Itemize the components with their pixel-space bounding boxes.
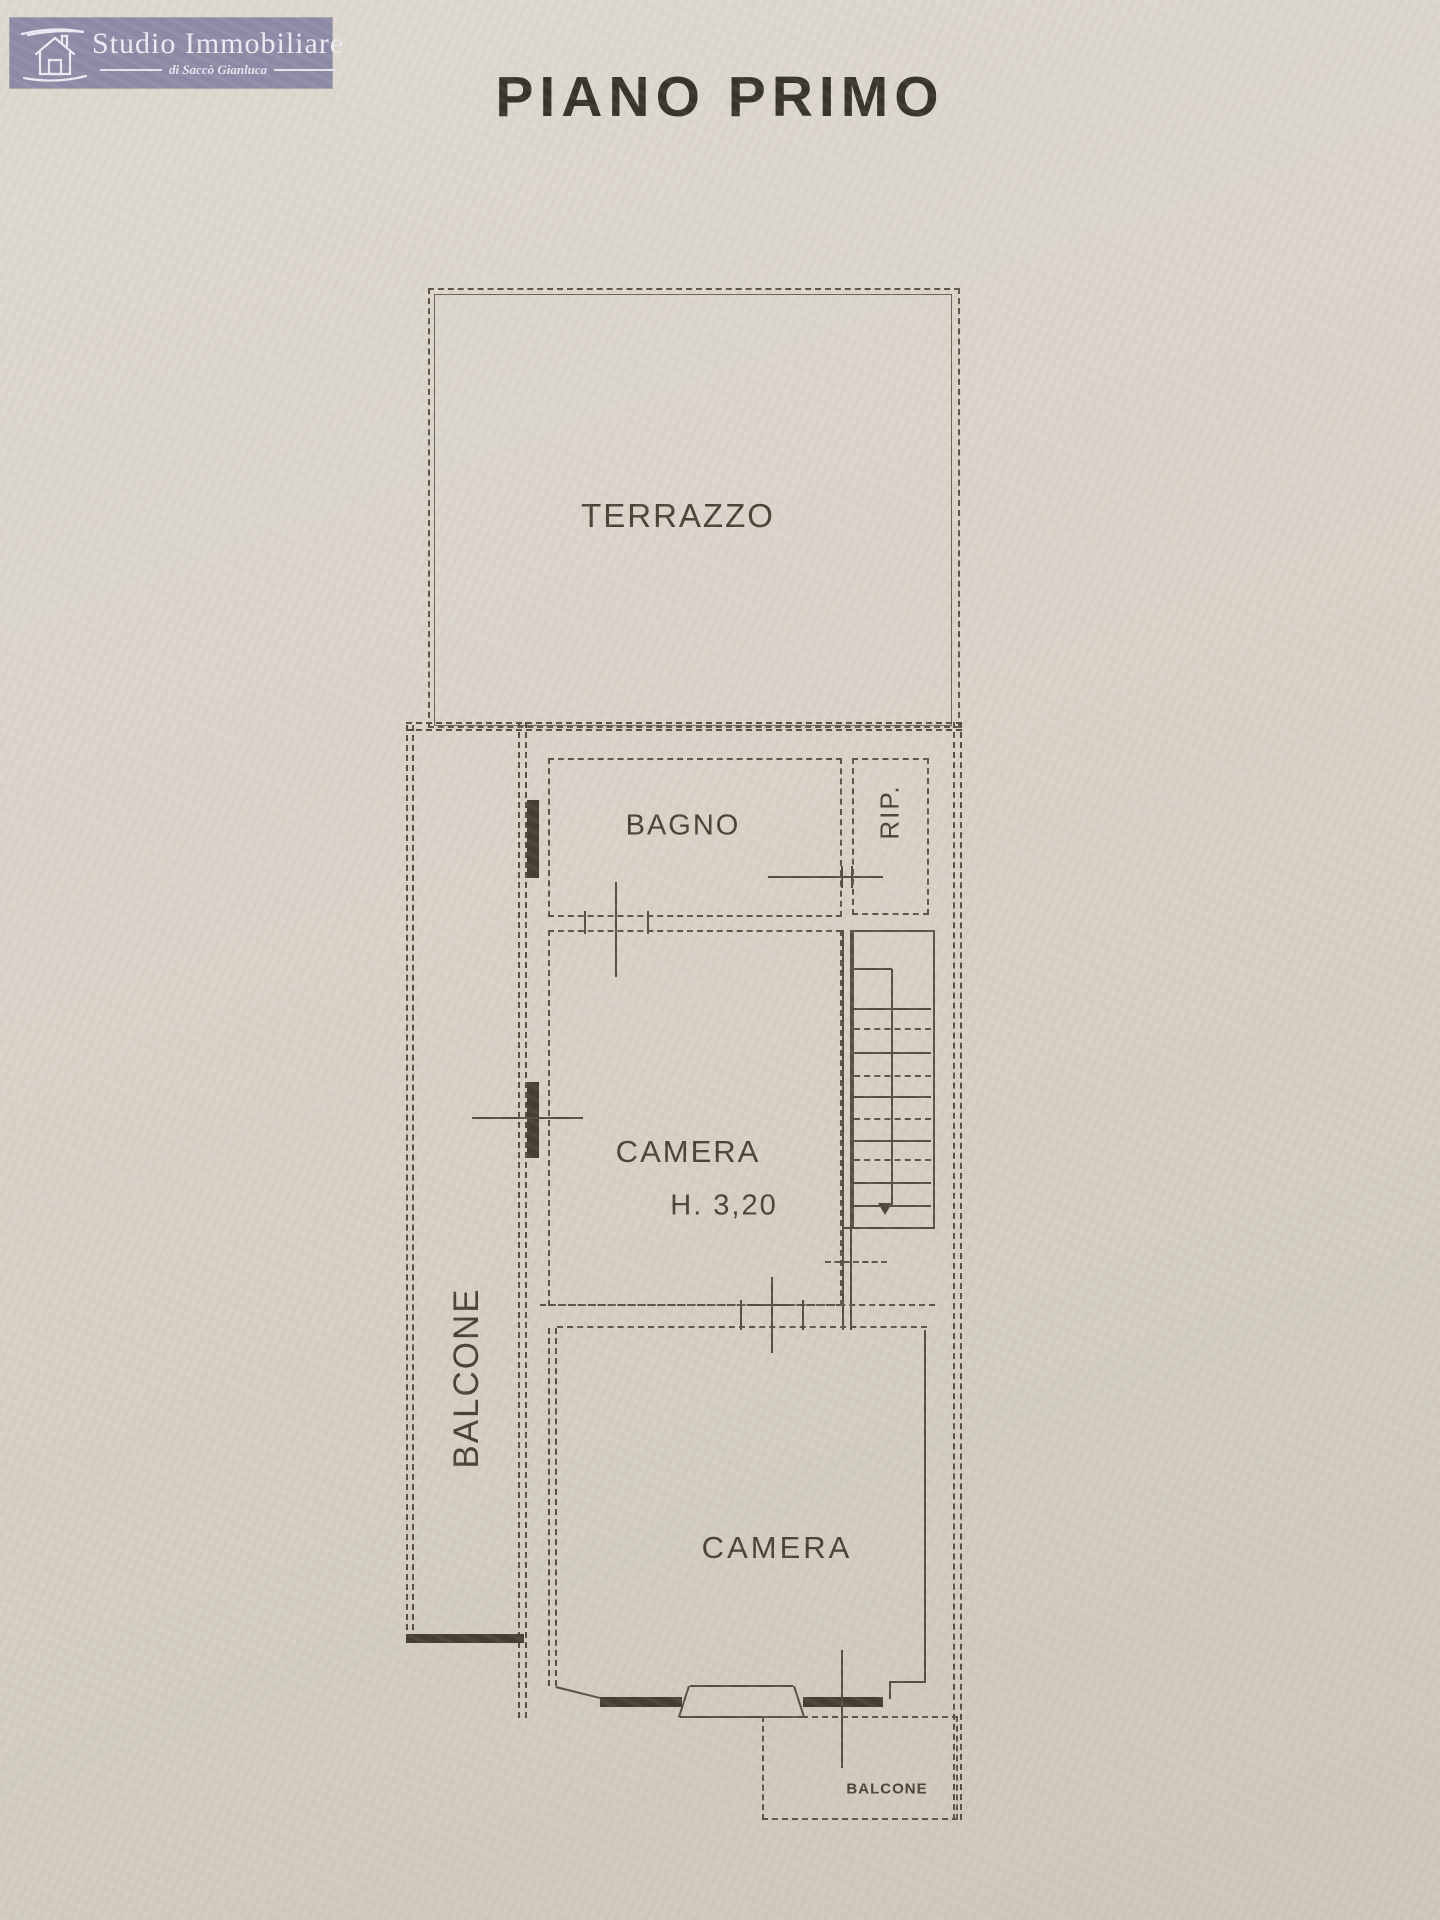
- rip-label: RIP.: [875, 784, 906, 839]
- floorplan-drawing: TERRAZZO BALCONE BAGNO RIP. CAMERA H. 3,…: [0, 0, 1440, 1920]
- stair-top-nosing: [854, 968, 892, 970]
- bagno-label: BAGNO: [626, 810, 741, 843]
- camera-lower-right-jog-v: [889, 1681, 891, 1699]
- stair-landing-line: [842, 1227, 934, 1229]
- stair-step: [854, 1075, 931, 1077]
- stair-step: [854, 1205, 931, 1207]
- camera-upper-window-mark: [472, 1117, 583, 1119]
- camera-lower-right-wall: [924, 1330, 926, 1681]
- camera-lower-door-tick: [750, 1304, 793, 1306]
- rip-door-jamb-left: [841, 866, 843, 888]
- balcone-left-bottom-wall: [406, 1634, 524, 1643]
- stair-direction-line: [891, 969, 893, 1205]
- camera-upper-height-note: H. 3,20: [670, 1190, 778, 1223]
- balcone-lower-outline: [762, 1716, 958, 1820]
- apartment-right-wall: [953, 722, 962, 1820]
- apartment-left-wall: [518, 722, 527, 1718]
- rip-door-mark: [768, 876, 883, 878]
- scanned-floorplan-page: { "page": { "title": "PIANO PRIMO" }, "l…: [0, 0, 1440, 1920]
- stair-step: [854, 1052, 931, 1054]
- stairwell-left-wall: [842, 930, 852, 1330]
- camera-lower-door-mark: [771, 1277, 773, 1353]
- camera-divider-wall-outer: [540, 1304, 935, 1306]
- camera-lower-window-left: [600, 1697, 682, 1707]
- camera-upper-window: [527, 1082, 539, 1158]
- stair-step: [854, 1118, 931, 1120]
- stair-step: [854, 1159, 931, 1161]
- camera-upper-room: [548, 930, 842, 1306]
- balcone-left-outer-wall: [406, 725, 414, 1640]
- rip-door-jamb-right: [851, 866, 853, 888]
- balcone-left-label: BALCONE: [447, 1287, 487, 1468]
- camera-lower-right-jog-h: [889, 1681, 926, 1683]
- camera-lower-door-jamb-left: [740, 1300, 742, 1330]
- bagno-window: [527, 800, 539, 878]
- camera-lower-label: CAMERA: [702, 1530, 853, 1566]
- stair-step: [854, 1096, 931, 1098]
- stairwell: [852, 930, 935, 1229]
- camera-lower-door-jamb-right: [802, 1300, 804, 1330]
- apartment-top-wall: [406, 722, 962, 731]
- terrazzo-label: TERRAZZO: [581, 497, 775, 535]
- camera-lower-bottom-corner: [556, 1686, 603, 1700]
- camera-divider-wall-inner: [557, 1326, 927, 1328]
- stair-step: [854, 1140, 931, 1142]
- stair-step: [854, 1008, 931, 1010]
- stair-break-line: [825, 1261, 887, 1263]
- camera-lower-left-wall: [548, 1328, 557, 1686]
- door-threshold-top: [690, 1685, 793, 1687]
- camera-lower-window-right: [803, 1697, 883, 1707]
- stair-step: [854, 1028, 931, 1030]
- balcone-lower-label: BALCONE: [846, 1781, 927, 1798]
- stair-step: [854, 1182, 931, 1184]
- camera-upper-label: CAMERA: [616, 1134, 761, 1170]
